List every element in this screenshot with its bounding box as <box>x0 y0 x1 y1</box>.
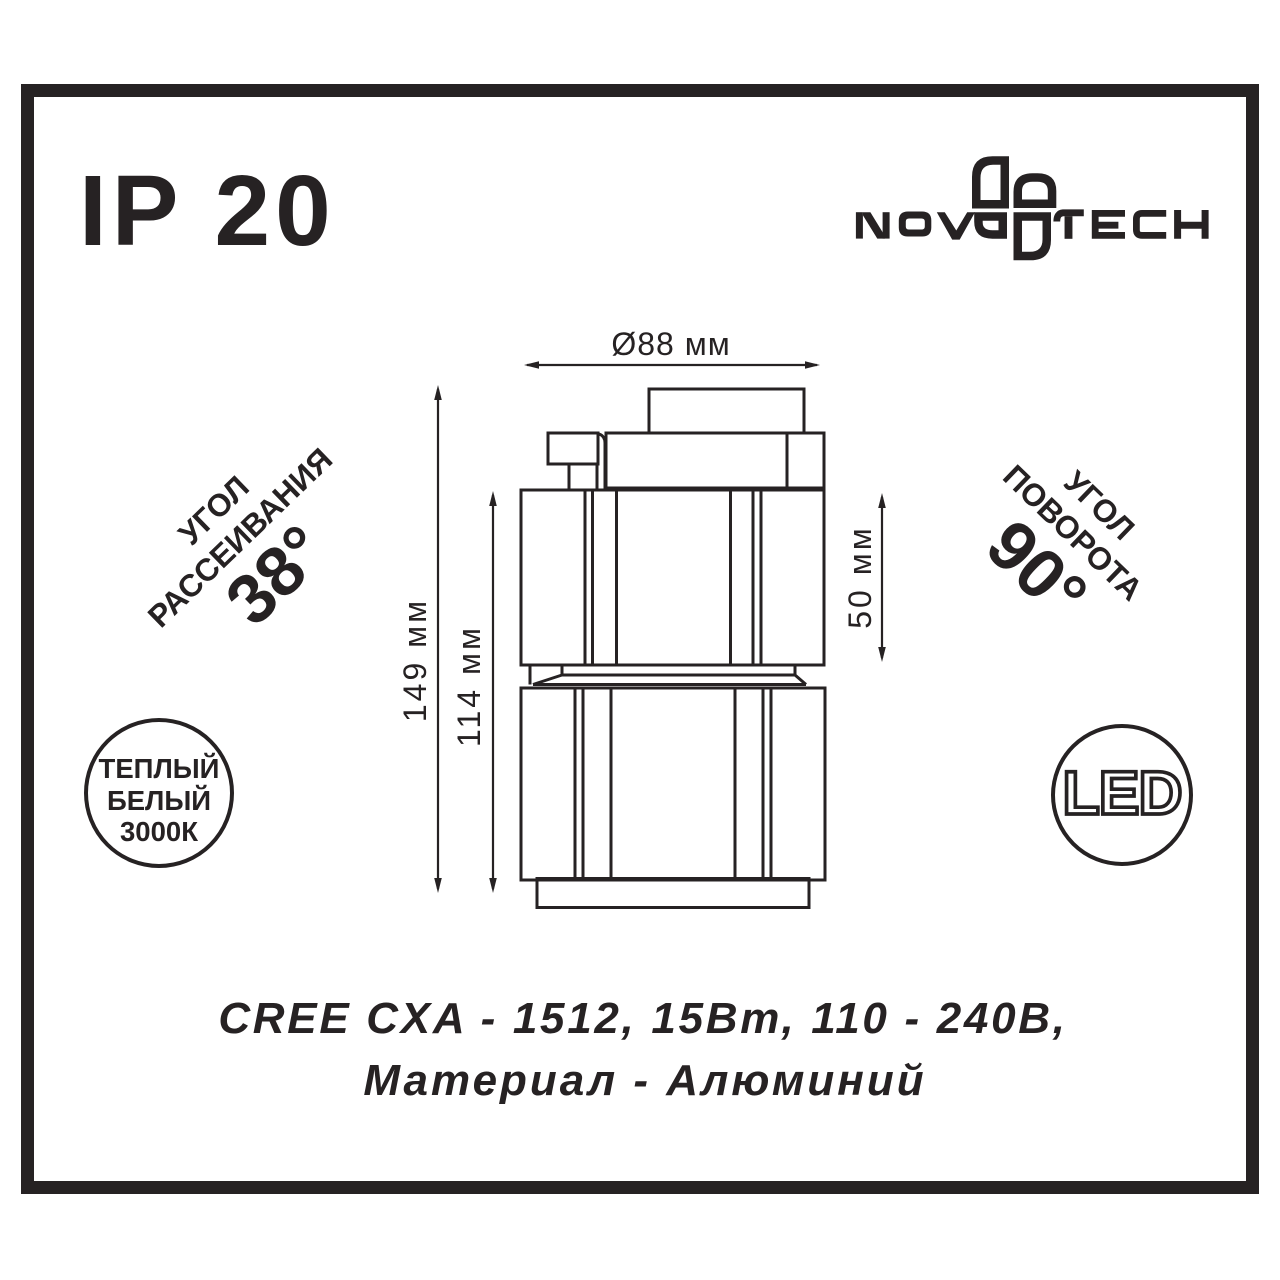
svg-text:114 мм: 114 мм <box>451 625 487 747</box>
svg-text:Ø88 мм: Ø88 мм <box>611 326 730 362</box>
svg-text:50 мм: 50 мм <box>842 525 878 628</box>
svg-text:149 мм: 149 мм <box>397 598 433 722</box>
